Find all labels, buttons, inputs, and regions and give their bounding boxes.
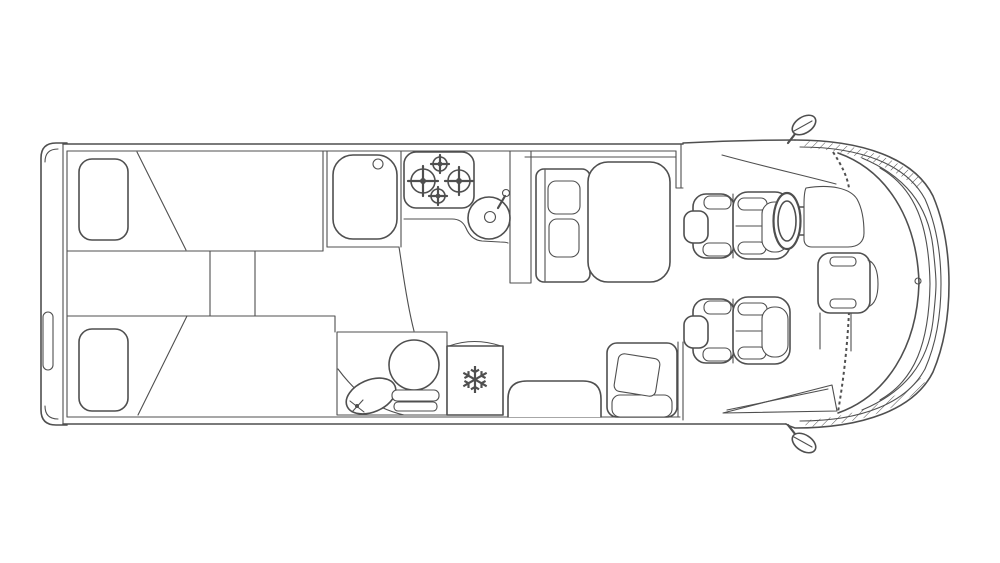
headrest: [684, 211, 708, 243]
wheel-arch-bench: [508, 381, 601, 417]
motorhome-floorplan: ❄: [0, 0, 1000, 563]
toilet: [389, 340, 439, 411]
bench-cushion-bottom: [549, 219, 579, 257]
kitchen: [323, 151, 510, 331]
bed-top-diagonal: [137, 152, 186, 250]
side-mirror-bottom-icon: [788, 425, 819, 457]
headrest: [684, 316, 708, 348]
hob: [404, 152, 474, 208]
seat-cushion: [613, 353, 660, 397]
passenger-seat: [684, 297, 790, 364]
dinette-wall: [510, 151, 531, 283]
side-mirror-top-icon: [788, 111, 819, 143]
bench-cushion-top: [548, 181, 580, 214]
bulkhead-partial-wall: [676, 144, 683, 188]
pillar-section-top: [833, 152, 849, 188]
entry-step: [723, 385, 837, 413]
pillar-section-bottom: [838, 312, 849, 412]
entry-wall: [678, 342, 683, 420]
bathroom: [337, 332, 447, 421]
fridge: ❄: [447, 342, 503, 416]
wiper-pivot: [915, 278, 921, 284]
snowflake-icon: ❄: [459, 359, 490, 402]
pillow-bottom: [79, 329, 128, 411]
rear-corner-top: [45, 149, 58, 162]
dashboard-edge: [722, 155, 836, 184]
kitchen-sink: [333, 155, 397, 239]
rear-corner-bottom: [45, 406, 58, 419]
front-bumper-line: [880, 168, 930, 400]
rear-bedroom: [67, 152, 335, 415]
kitchen-wall: [323, 151, 327, 251]
dashboard-block: [804, 186, 864, 247]
center-step: [210, 251, 255, 316]
front-body-inner-b: [862, 158, 936, 410]
dinette-table: [588, 162, 670, 282]
steering-wheel: [774, 193, 801, 249]
rear-detail-bar: [43, 312, 53, 370]
travel-seat: [607, 343, 677, 417]
cab-front: [683, 111, 949, 457]
dinette-bench: [536, 169, 590, 282]
door-swing-line: [399, 247, 414, 331]
cab-roof-edge: [683, 140, 795, 143]
floorplan-canvas: ❄: [0, 0, 1000, 563]
bed-bottom-diagonal: [138, 316, 187, 415]
pillow-top: [79, 159, 128, 240]
dinette: [508, 151, 677, 417]
